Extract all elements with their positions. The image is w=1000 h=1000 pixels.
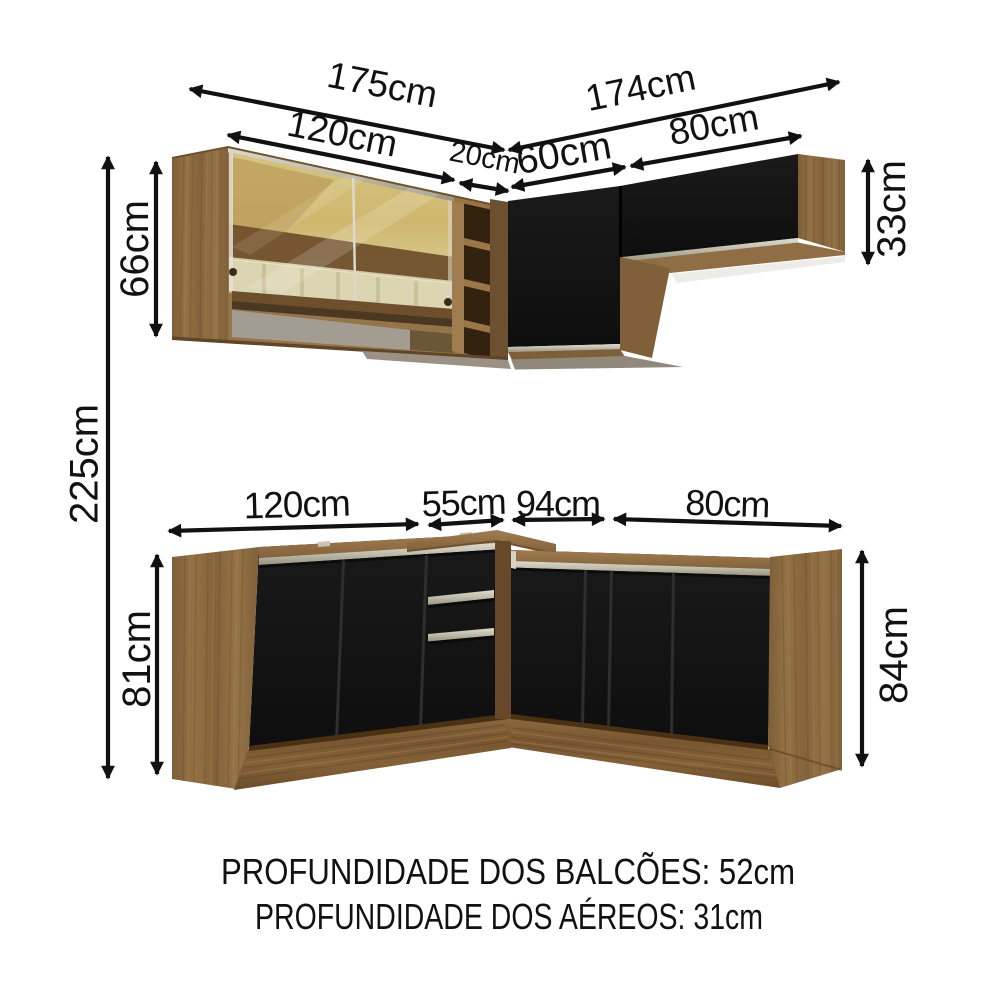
svg-text:225cm: 225cm — [63, 404, 107, 524]
svg-text:PROFUNDIDADE DOS AÉREOS: 31cm: PROFUNDIDADE DOS AÉREOS: 31cm — [255, 896, 763, 937]
svg-text:66cm: 66cm — [113, 200, 157, 298]
svg-text:60cm: 60cm — [513, 124, 614, 183]
svg-text:81cm: 81cm — [115, 610, 159, 708]
svg-text:175cm: 175cm — [324, 54, 441, 115]
svg-text:120cm: 120cm — [284, 103, 401, 165]
svg-text:33cm: 33cm — [870, 160, 914, 258]
svg-text:94cm: 94cm — [516, 483, 600, 524]
svg-text:80cm: 80cm — [685, 482, 770, 526]
svg-text:55cm: 55cm — [421, 481, 506, 525]
svg-text:84cm: 84cm — [872, 606, 916, 704]
svg-text:PROFUNDIDADE DOS BALCÕES: 52cm: PROFUNDIDADE DOS BALCÕES: 52cm — [221, 851, 795, 892]
svg-text:120cm: 120cm — [243, 483, 350, 527]
